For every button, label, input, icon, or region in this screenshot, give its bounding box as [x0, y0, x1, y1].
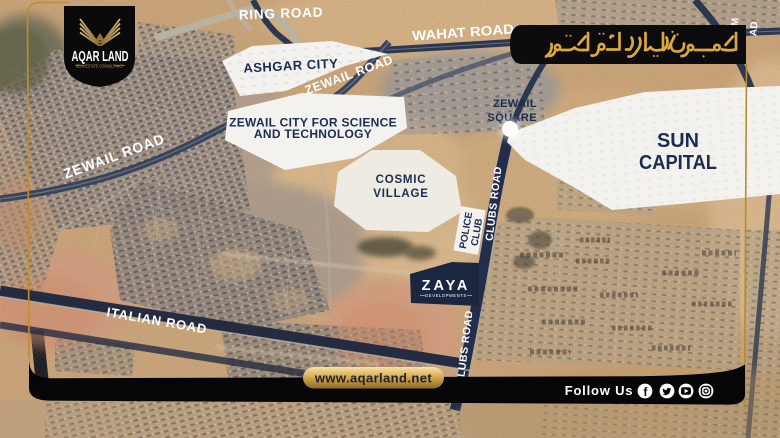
- svg-text:ZAYA: ZAYA: [422, 278, 471, 294]
- svg-text:REAL ESTATE CONSULTANCY: REAL ESTATE CONSULTANCY: [76, 64, 124, 69]
- svg-text:AND TECHNOLOGY: AND TECHNOLOGY: [254, 127, 372, 141]
- svg-text:COSMIC: COSMIC: [376, 174, 427, 186]
- svg-text:RING ROAD: RING ROAD: [239, 5, 324, 23]
- svg-text:CAPITAL: CAPITAL: [639, 152, 717, 174]
- svg-text:VILLAGE: VILLAGE: [373, 188, 428, 200]
- svg-text:f: f: [643, 387, 647, 399]
- svg-text:SUN: SUN: [657, 130, 699, 152]
- svg-text:Follow Us: Follow Us: [565, 383, 634, 398]
- svg-text:www.aqarland.net: www.aqarland.net: [314, 371, 432, 386]
- svg-text:AD: AD: [748, 21, 760, 36]
- svg-text:DEVELOPMENTS: DEVELOPMENTS: [425, 293, 467, 298]
- svg-text:ZEWAIL: ZEWAIL: [493, 98, 537, 110]
